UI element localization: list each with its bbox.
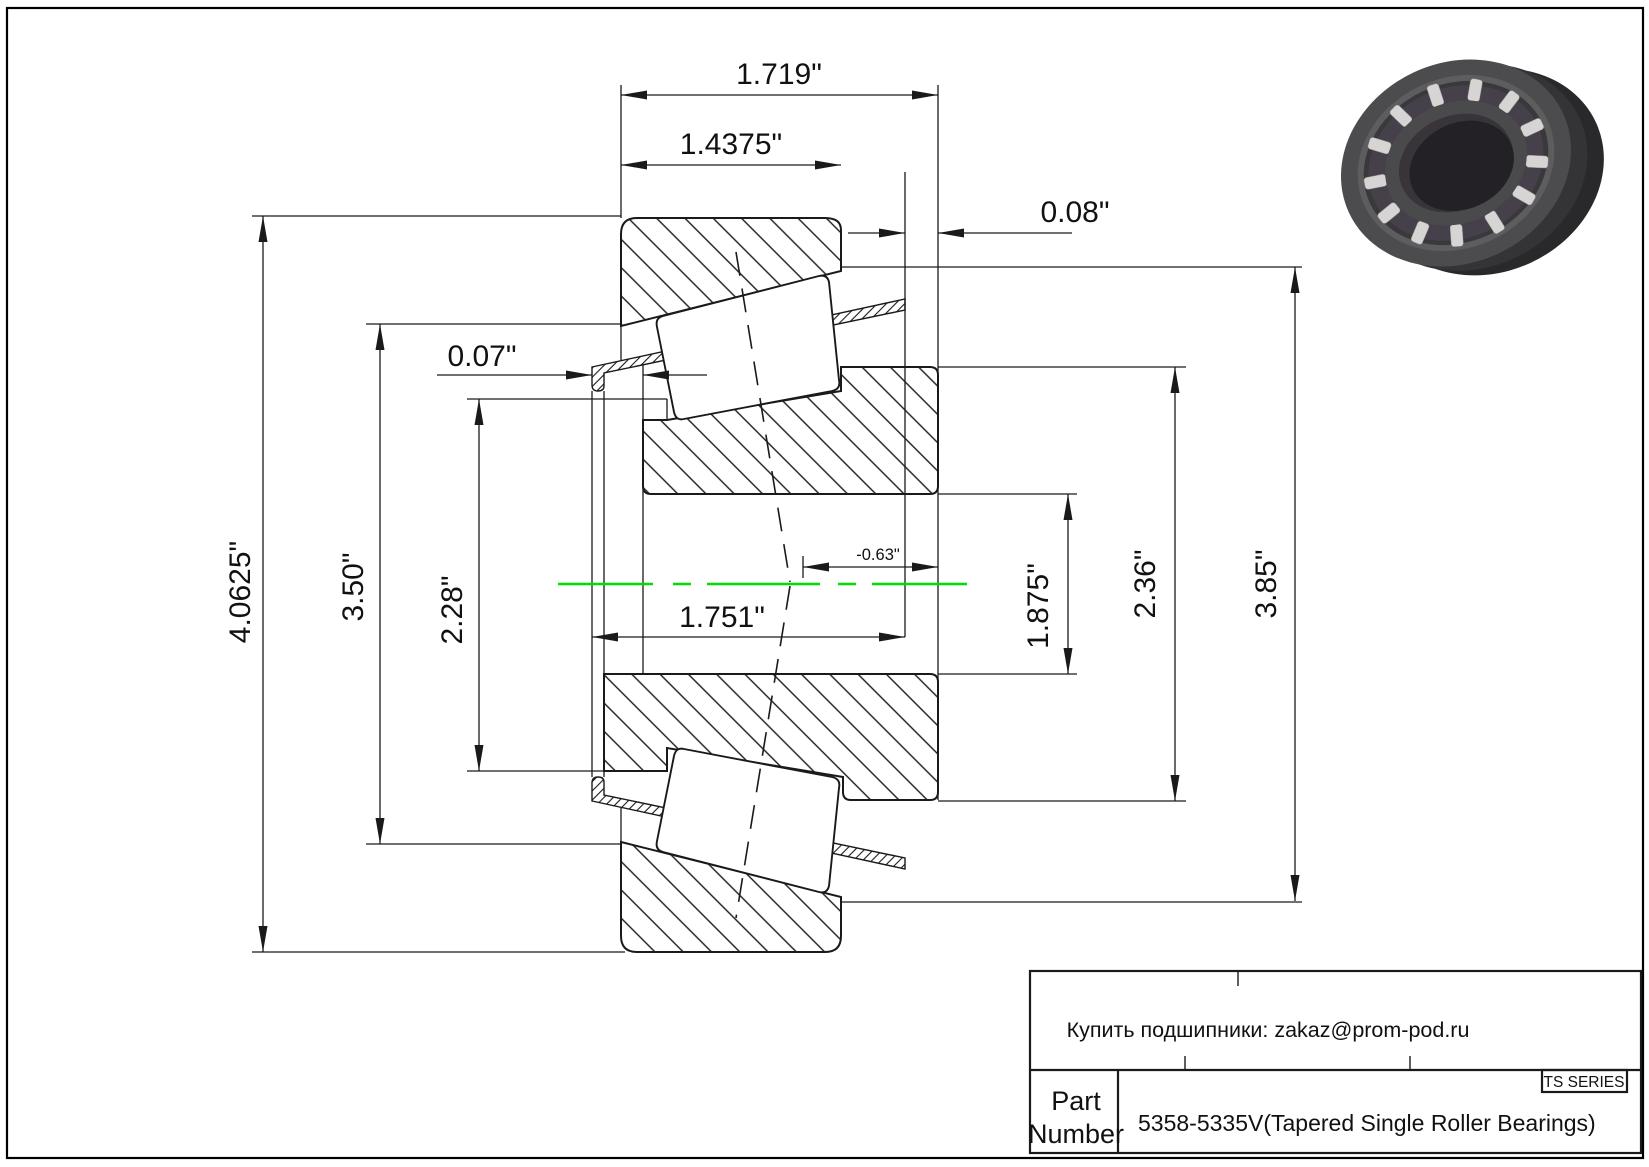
dim-cup-width: 1.4375" (680, 128, 782, 161)
dim-front-offset: 0.07" (447, 340, 516, 373)
dim-outer-width: 1.719" (736, 58, 822, 91)
bearing-3d-render (1307, 12, 1638, 324)
series-label: TS SERIES (1544, 1074, 1625, 1091)
dim-housing-od: 4.0625" (224, 541, 257, 643)
dim-outer-dia-right: 3.85" (1250, 549, 1283, 618)
dim-back-offset: 0.08" (1040, 196, 1109, 229)
dim-inner-dia-small: 1.875" (1022, 563, 1055, 649)
dim-bore-width: 1.751" (679, 601, 765, 634)
dim-effective-center: -0.63" (856, 546, 900, 564)
dim-rib-od: 2.28" (436, 575, 469, 644)
bearing-drawing-svg: 1.719" 1.4375" 0.08" 0.07" 1.751" -0.63"… (0, 0, 1649, 1167)
title-block: Купить подшипники: zakaz@prom-pod.ru TS … (1028, 971, 1641, 1153)
part-number: 5358-5335V(Tapered Single Roller Bearing… (1138, 1110, 1596, 1136)
vendor-note: Купить подшипники: zakaz@prom-pod.ru (1067, 1018, 1470, 1042)
drawing-page: 1.719" 1.4375" 0.08" 0.07" 1.751" -0.63"… (0, 0, 1649, 1167)
dim-inner-dia-mid: 2.36" (1129, 549, 1162, 618)
dim-flange-od: 3.50" (337, 552, 370, 621)
part-label-line1: Part (1051, 1086, 1101, 1116)
part-label-line2: Number (1028, 1119, 1124, 1149)
